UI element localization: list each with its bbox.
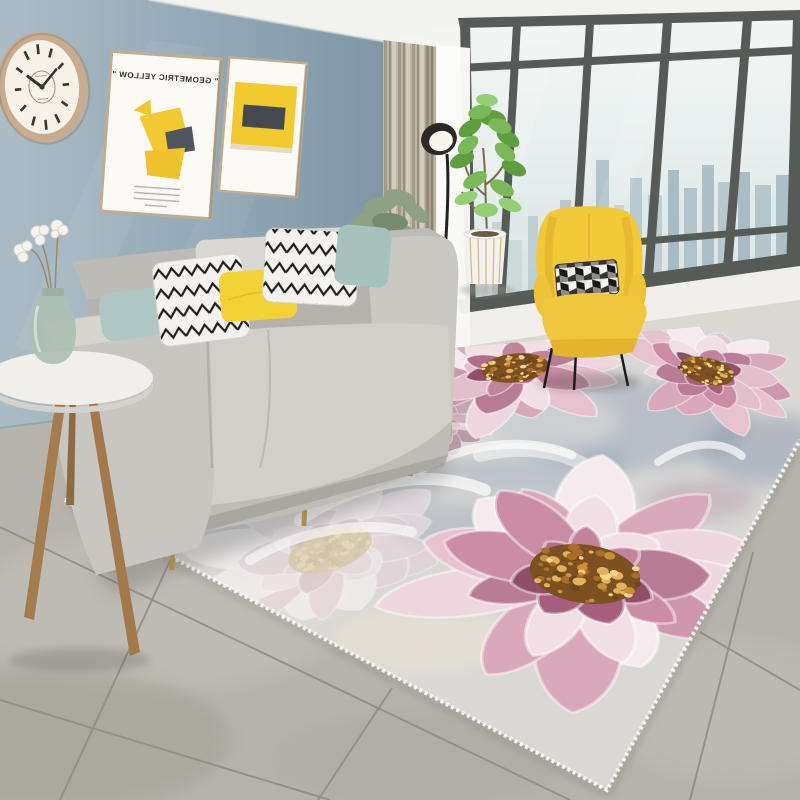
armchair-shadow <box>536 373 640 391</box>
clock-tick <box>63 84 69 85</box>
vase-body <box>30 294 76 364</box>
armchair-cube-pillow <box>555 259 620 298</box>
pillow-teal-right <box>333 224 392 288</box>
clock-tick <box>15 89 21 90</box>
living-room-photo: " GEOMETRIC YELLOW " <box>0 0 800 800</box>
armchair-seat <box>542 293 647 340</box>
clock-tick <box>45 120 46 130</box>
fig-pot-soil <box>471 231 499 237</box>
scene-canvas: " GEOMETRIC YELLOW " <box>0 0 800 800</box>
poster-right <box>219 57 308 197</box>
poster-right-art <box>230 82 297 154</box>
clock-tick <box>38 44 39 54</box>
poster-left: " GEOMETRIC YELLOW " <box>101 51 223 218</box>
vase-neck <box>42 288 64 296</box>
table-shadow <box>10 648 150 672</box>
pot-shadow <box>459 284 515 296</box>
